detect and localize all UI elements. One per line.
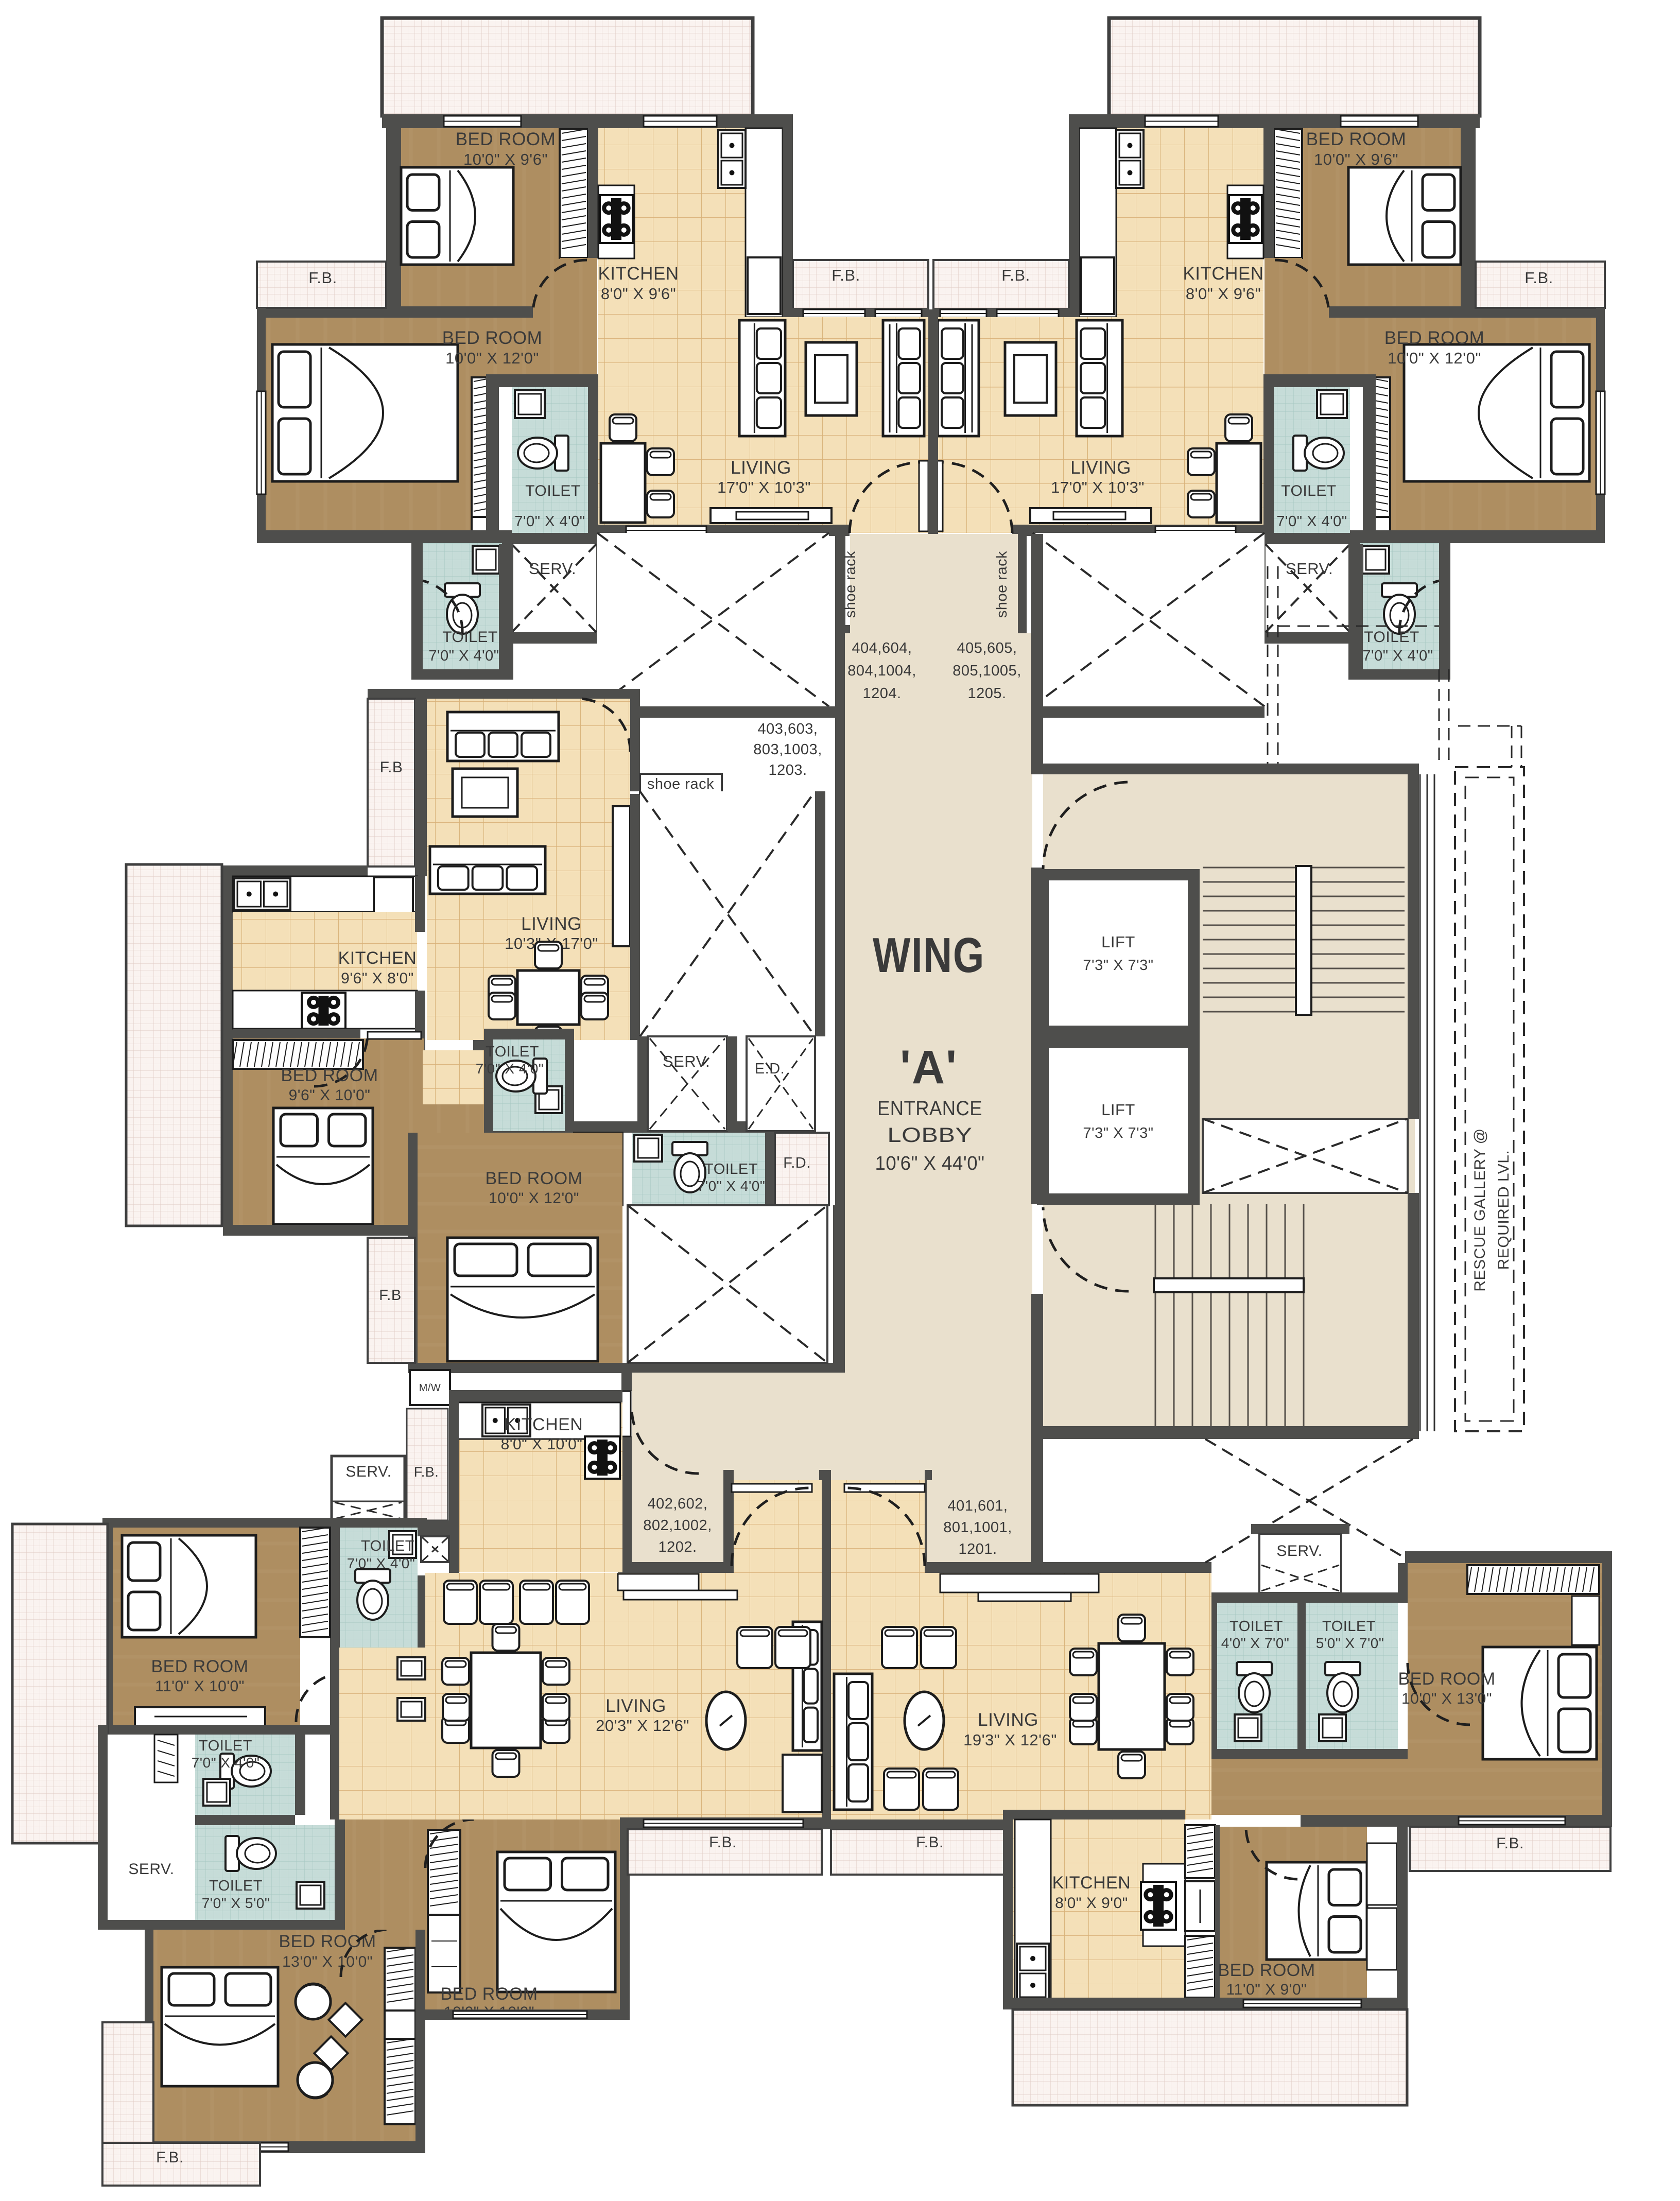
svg-text:804,1004,: 804,1004, bbox=[847, 663, 916, 679]
svg-text:7'0" X 4'0": 7'0" X 4'0" bbox=[476, 1061, 544, 1077]
svg-text:TOILET: TOILET bbox=[1281, 482, 1336, 499]
svg-text:7'0" X 4'0": 7'0" X 4'0" bbox=[192, 1755, 260, 1771]
svg-text:'A': 'A' bbox=[900, 1041, 958, 1094]
svg-text:4'0" X 7'0": 4'0" X 7'0" bbox=[1221, 1635, 1290, 1651]
svg-text:BED ROOM: BED ROOM bbox=[440, 1984, 538, 2004]
svg-text:TOILET: TOILET bbox=[525, 482, 580, 499]
svg-text:9'6" X 10'0": 9'6" X 10'0" bbox=[289, 1087, 371, 1104]
svg-text:10'6" X 44'0": 10'6" X 44'0" bbox=[875, 1153, 985, 1174]
svg-text:TOILET: TOILET bbox=[209, 1878, 263, 1894]
svg-text:BED ROOM: BED ROOM bbox=[485, 1169, 582, 1188]
svg-text:5'0" X 7'0": 5'0" X 7'0" bbox=[1316, 1635, 1384, 1651]
svg-text:E.D.: E.D. bbox=[755, 1061, 785, 1077]
svg-text:401,601,: 401,601, bbox=[948, 1498, 1008, 1514]
svg-text:BED ROOM: BED ROOM bbox=[456, 129, 556, 149]
svg-text:F.D.: F.D. bbox=[783, 1155, 811, 1171]
svg-text:7'0" X 4'0": 7'0" X 4'0" bbox=[1276, 513, 1347, 530]
svg-text:LIVING: LIVING bbox=[1070, 458, 1131, 478]
svg-text:805,1005,: 805,1005, bbox=[952, 663, 1021, 679]
svg-text:17'0" X 10'3": 17'0" X 10'3" bbox=[717, 478, 811, 496]
svg-text:LIVING: LIVING bbox=[731, 458, 791, 478]
svg-text:19'3" X 12'6": 19'3" X 12'6" bbox=[963, 1731, 1057, 1749]
svg-text:8'0" X 9'6": 8'0" X 9'6" bbox=[601, 285, 676, 303]
svg-text:10'0" X 9'6": 10'0" X 9'6" bbox=[1314, 150, 1398, 168]
svg-text:RESCUE GALLERY @: RESCUE GALLERY @ bbox=[1471, 1128, 1488, 1291]
svg-text:WING: WING bbox=[873, 928, 985, 983]
svg-text:7'0" X 4'0": 7'0" X 4'0" bbox=[347, 1555, 415, 1571]
svg-text:KITCHEN: KITCHEN bbox=[1052, 1873, 1131, 1893]
svg-text:801,1001,: 801,1001, bbox=[943, 1519, 1012, 1536]
svg-text:KITCHEN: KITCHEN bbox=[598, 264, 679, 284]
svg-text:1203.: 1203. bbox=[768, 762, 807, 778]
svg-text:BED ROOM: BED ROOM bbox=[442, 328, 543, 348]
svg-text:TOILET: TOILET bbox=[704, 1161, 758, 1177]
svg-text:F.B.: F.B. bbox=[1496, 1835, 1524, 1852]
svg-text:SERV.: SERV. bbox=[128, 1861, 174, 1878]
svg-text:1205.: 1205. bbox=[967, 685, 1006, 702]
svg-text:7'0" X 4'0": 7'0" X 4'0" bbox=[514, 513, 585, 530]
svg-text:ENTRANCE: ENTRANCE bbox=[877, 1097, 982, 1120]
svg-text:SERV.: SERV. bbox=[529, 560, 576, 578]
svg-text:10'0" X 9'6": 10'0" X 9'6" bbox=[463, 150, 548, 168]
svg-text:7'0" X 4'0": 7'0" X 4'0" bbox=[697, 1178, 766, 1194]
svg-text:BED ROOM: BED ROOM bbox=[1306, 129, 1407, 149]
svg-text:LIFT: LIFT bbox=[1101, 933, 1135, 951]
svg-text:803,1003,: 803,1003, bbox=[753, 741, 822, 758]
svg-text:402,602,: 402,602, bbox=[648, 1496, 708, 1512]
svg-text:F.B.: F.B. bbox=[414, 1464, 439, 1480]
svg-text:F.B.: F.B. bbox=[709, 1834, 737, 1851]
svg-text:LOBBY: LOBBY bbox=[888, 1124, 973, 1147]
svg-text:8'0" X 9'6": 8'0" X 9'6" bbox=[1186, 285, 1261, 303]
svg-text:F.B: F.B bbox=[379, 1287, 401, 1304]
svg-text:BED ROOM: BED ROOM bbox=[151, 1657, 248, 1676]
svg-text:1201.: 1201. bbox=[958, 1541, 997, 1557]
svg-text:7'3" X 7'3": 7'3" X 7'3" bbox=[1083, 957, 1153, 974]
svg-text:403,603,: 403,603, bbox=[758, 721, 818, 737]
svg-text:F.B.: F.B. bbox=[916, 1834, 944, 1851]
svg-text:TOILET: TOILET bbox=[1364, 629, 1419, 646]
svg-text:11'0" X 10'0": 11'0" X 10'0" bbox=[155, 1678, 245, 1695]
svg-text:KITCHEN: KITCHEN bbox=[505, 1415, 583, 1434]
svg-text:13'0" X 10'0": 13'0" X 10'0" bbox=[282, 1953, 373, 1970]
svg-text:10'0" X 12'0": 10'0" X 12'0" bbox=[1388, 349, 1481, 367]
svg-text:TOILET: TOILET bbox=[1322, 1618, 1376, 1635]
svg-text:802,1002,: 802,1002, bbox=[643, 1517, 712, 1534]
svg-text:KITCHEN: KITCHEN bbox=[338, 948, 417, 968]
svg-text:F.B.: F.B. bbox=[832, 266, 860, 284]
svg-text:10'0" X 12'0": 10'0" X 12'0" bbox=[445, 349, 539, 367]
svg-text:F.B.: F.B. bbox=[156, 2149, 184, 2166]
svg-text:F.B.: F.B. bbox=[1525, 269, 1553, 287]
svg-text:LIVING: LIVING bbox=[605, 1696, 666, 1716]
svg-text:SERV.: SERV. bbox=[1276, 1543, 1322, 1559]
svg-text:BED ROOM: BED ROOM bbox=[1218, 1961, 1315, 1980]
svg-text:7'3" X 7'3": 7'3" X 7'3" bbox=[1083, 1125, 1153, 1141]
svg-text:shoe rack: shoe rack bbox=[647, 776, 714, 792]
svg-text:10'0" X 12'0": 10'0" X 12'0" bbox=[489, 1190, 579, 1207]
svg-text:11'0" X 9'0": 11'0" X 9'0" bbox=[1226, 1981, 1307, 1998]
svg-text:BED ROOM: BED ROOM bbox=[1384, 328, 1485, 348]
svg-text:20'3" X 12'6": 20'3" X 12'6" bbox=[596, 1717, 689, 1735]
svg-text:17'0" X 10'3": 17'0" X 10'3" bbox=[1051, 478, 1145, 496]
svg-text:7'0" X 5'0": 7'0" X 5'0" bbox=[202, 1895, 270, 1911]
svg-text:TOILET: TOILET bbox=[361, 1538, 414, 1554]
svg-text:TOILET: TOILET bbox=[1229, 1618, 1283, 1635]
svg-text:SERV.: SERV. bbox=[663, 1052, 710, 1070]
svg-text:F.B: F.B bbox=[380, 759, 403, 776]
svg-text:TOILET: TOILET bbox=[199, 1738, 252, 1754]
svg-text:REQUIRED LVL.: REQUIRED LVL. bbox=[1495, 1150, 1512, 1270]
svg-text:KITCHEN: KITCHEN bbox=[1183, 264, 1263, 284]
svg-text:SERV.: SERV. bbox=[1286, 560, 1333, 578]
svg-text:LIVING: LIVING bbox=[521, 914, 582, 934]
svg-text:405,605,: 405,605, bbox=[957, 640, 1017, 656]
svg-text:LIVING: LIVING bbox=[978, 1710, 1038, 1730]
svg-text:1202.: 1202. bbox=[658, 1539, 697, 1555]
svg-text:TOILET: TOILET bbox=[442, 629, 497, 646]
svg-text:8'0" X 9'0": 8'0" X 9'0" bbox=[1055, 1895, 1128, 1912]
svg-text:TOILET: TOILET bbox=[486, 1044, 539, 1060]
svg-text:M/W: M/W bbox=[419, 1382, 441, 1394]
svg-text:F.B.: F.B. bbox=[1001, 266, 1030, 284]
svg-text:404,604,: 404,604, bbox=[852, 640, 912, 656]
svg-text:1204.: 1204. bbox=[862, 685, 901, 702]
svg-text:LIFT: LIFT bbox=[1101, 1101, 1135, 1119]
svg-text:F.B.: F.B. bbox=[308, 269, 337, 287]
svg-text:BED ROOM: BED ROOM bbox=[279, 1932, 376, 1951]
svg-text:8'0" X 10'0": 8'0" X 10'0" bbox=[501, 1436, 583, 1453]
svg-text:BED ROOM: BED ROOM bbox=[281, 1066, 378, 1085]
svg-text:7'0" X 4'0": 7'0" X 4'0" bbox=[1362, 648, 1433, 664]
svg-text:shoe rack: shoe rack bbox=[994, 551, 1010, 618]
svg-text:shoe rack: shoe rack bbox=[842, 551, 859, 618]
svg-text:7'0" X 4'0": 7'0" X 4'0" bbox=[428, 648, 499, 664]
svg-text:SERV.: SERV. bbox=[345, 1463, 391, 1480]
svg-text:9'6" X 8'0": 9'6" X 8'0" bbox=[341, 970, 414, 987]
